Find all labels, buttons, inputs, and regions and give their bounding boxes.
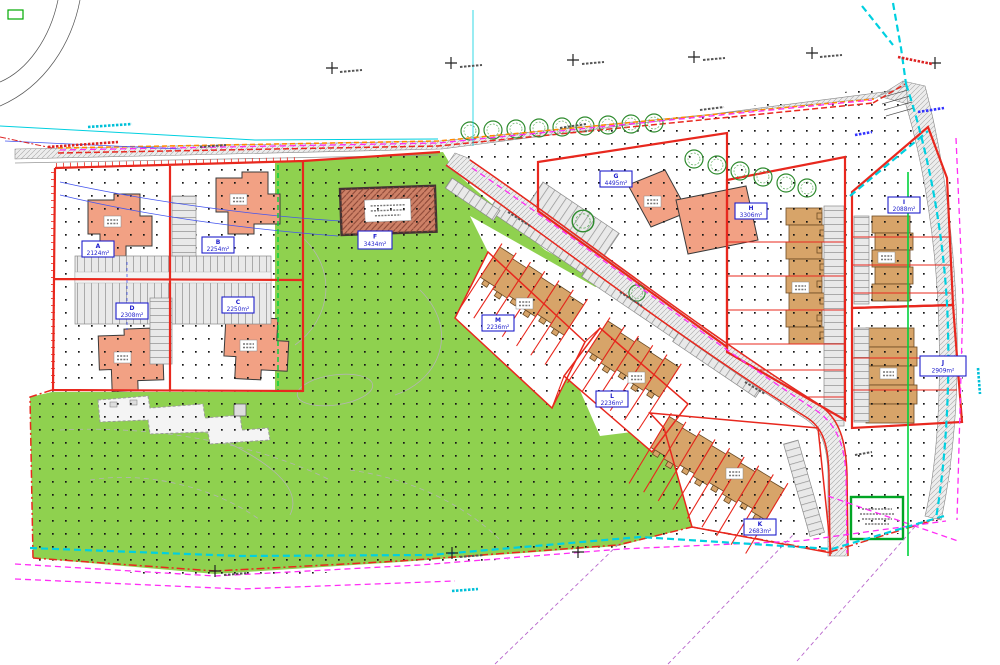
parcel-label-B: B2254m² bbox=[202, 237, 234, 253]
parking-court bbox=[75, 256, 271, 324]
svg-text:2124m²: 2124m² bbox=[87, 250, 110, 257]
svg-text:F: F bbox=[373, 234, 377, 241]
svg-text:2909m²: 2909m² bbox=[932, 368, 955, 375]
parking-strip bbox=[150, 298, 172, 364]
utility-line-cyan-dashed bbox=[893, 3, 906, 84]
parking-strip bbox=[824, 206, 844, 426]
parcel-label-D: D2308m² bbox=[116, 303, 148, 319]
parcel-label-I: I2088m² bbox=[888, 197, 920, 213]
parking-strip bbox=[854, 216, 869, 304]
svg-text:H: H bbox=[748, 205, 753, 212]
parcel-label-G: G4495m² bbox=[600, 171, 632, 187]
parcel-label-K: K2683m² bbox=[744, 519, 776, 535]
parking-strip bbox=[172, 196, 196, 256]
utility-line-cyan bbox=[0, 126, 438, 140]
site-plan-svg: A2124m² B2254m² C2250m² D2308m² F3434m² … bbox=[0, 0, 1000, 665]
survey-cross-icon bbox=[688, 51, 700, 63]
survey-cross-icon bbox=[806, 47, 818, 59]
parcel-label-H: H3306m² bbox=[735, 203, 767, 219]
parcel-label-C: C2250m² bbox=[222, 297, 254, 313]
svg-text:B: B bbox=[216, 239, 221, 246]
svg-text:2088m²: 2088m² bbox=[893, 206, 916, 213]
svg-text:4495m²: 4495m² bbox=[605, 180, 628, 187]
parcel-label-F: F3434m² bbox=[358, 231, 392, 249]
utility-line-cyan-dashed bbox=[862, 6, 893, 45]
parcel-label-M: M2236m² bbox=[482, 315, 514, 331]
parking-strip bbox=[854, 328, 869, 422]
survey-cross-icon bbox=[567, 54, 579, 66]
svg-text:D: D bbox=[130, 305, 135, 312]
parcel-label-J: J2909m² bbox=[920, 356, 966, 376]
svg-text:M: M bbox=[495, 317, 501, 324]
utility-line-magenta bbox=[15, 579, 455, 589]
parcel-label-L: L2236m² bbox=[596, 391, 628, 407]
svg-text:3306m²: 3306m² bbox=[740, 212, 763, 219]
svg-text:2250m²: 2250m² bbox=[227, 306, 250, 313]
survey-cross-icon bbox=[445, 57, 457, 69]
svg-text:2236m²: 2236m² bbox=[487, 324, 510, 331]
parcel-label-A: A2124m² bbox=[82, 241, 114, 257]
site-plan-canvas: A2124m² B2254m² C2250m² D2308m² F3434m² … bbox=[0, 0, 1000, 665]
svg-text:2254m²: 2254m² bbox=[207, 246, 230, 253]
svg-text:C: C bbox=[236, 299, 241, 306]
svg-text:2236m²: 2236m² bbox=[601, 400, 624, 407]
svg-text:G: G bbox=[614, 173, 619, 180]
survey-cross-icon bbox=[326, 62, 338, 74]
svg-text:L: L bbox=[610, 393, 614, 400]
svg-text:J: J bbox=[941, 360, 944, 367]
svg-text:2683m²: 2683m² bbox=[749, 528, 772, 535]
svg-text:K: K bbox=[758, 521, 763, 528]
svg-text:A: A bbox=[96, 243, 101, 250]
svg-text:2308m²: 2308m² bbox=[121, 312, 144, 319]
svg-text:3434m²: 3434m² bbox=[364, 241, 387, 248]
svg-text:I: I bbox=[903, 199, 905, 206]
